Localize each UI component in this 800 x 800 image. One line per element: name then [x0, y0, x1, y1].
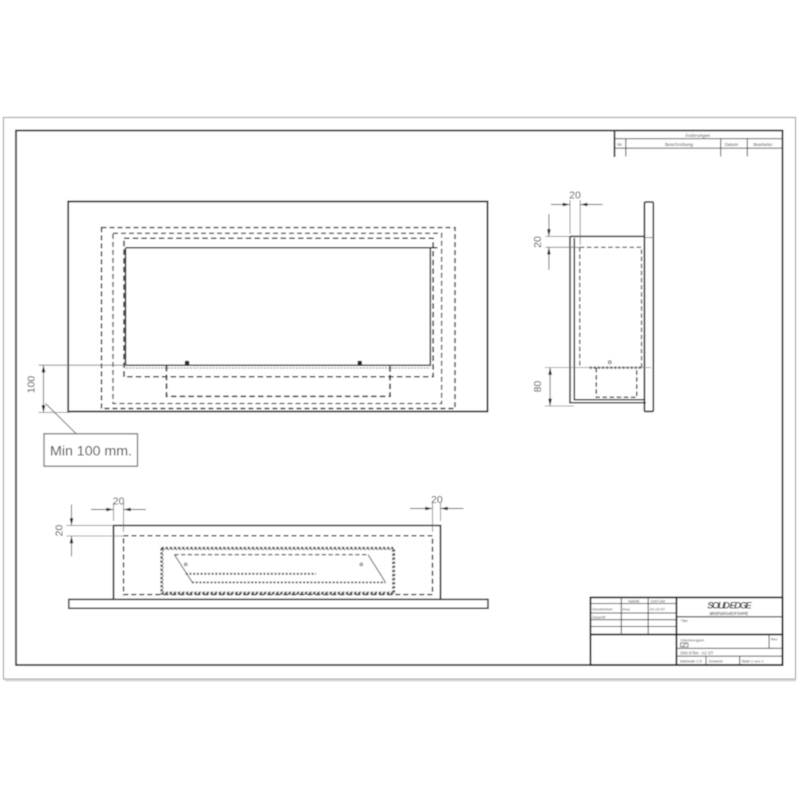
svg-text:100: 100 — [26, 376, 38, 394]
svg-text:DIN 6784 - A2 ST: DIN 6784 - A2 ST — [681, 650, 714, 655]
svg-text:20: 20 — [532, 236, 544, 248]
svg-text:SIEMENS PLM SOFTWARE: SIEMENS PLM SOFTWARE — [709, 611, 749, 616]
svg-text:20: 20 — [54, 525, 66, 537]
svg-text:Gezeichnet: Gezeichnet — [592, 607, 613, 612]
svg-text:80: 80 — [532, 381, 544, 393]
svg-text:20: 20 — [113, 496, 125, 508]
svg-text:SOLID EDGE: SOLID EDGE — [707, 601, 752, 612]
svg-text:DATUM: DATUM — [651, 598, 665, 603]
svg-text:20: 20 — [431, 494, 443, 506]
svg-text:Titel: Titel — [681, 618, 688, 623]
svg-text:Gewicht: Gewicht — [709, 659, 724, 664]
svg-text:Bearbeiter: Bearbeiter — [753, 142, 773, 147]
svg-text:Änderungen: Änderungen — [685, 132, 710, 138]
svg-text:Hou: Hou — [623, 607, 630, 612]
svg-text:NAME: NAME — [628, 598, 640, 603]
svg-text:Beschreibung: Beschreibung — [665, 142, 694, 147]
svg-text:Zeichnungsnr.: Zeichnungsnr. — [681, 638, 705, 643]
svg-text:Nr.: Nr. — [617, 142, 622, 147]
svg-text:20: 20 — [569, 190, 581, 202]
svg-text:Rev: Rev — [771, 637, 777, 641]
svg-text:Datum: Datum — [725, 142, 739, 147]
svg-text:Min 100 mm.: Min 100 mm. — [50, 444, 132, 460]
svg-text:Maßstab 1:5: Maßstab 1:5 — [680, 659, 702, 664]
svg-text:24.10.07: 24.10.07 — [650, 607, 666, 612]
svg-text:Geprüft: Geprüft — [592, 614, 606, 619]
svg-text:Blatt 1 von 1: Blatt 1 von 1 — [742, 659, 764, 664]
